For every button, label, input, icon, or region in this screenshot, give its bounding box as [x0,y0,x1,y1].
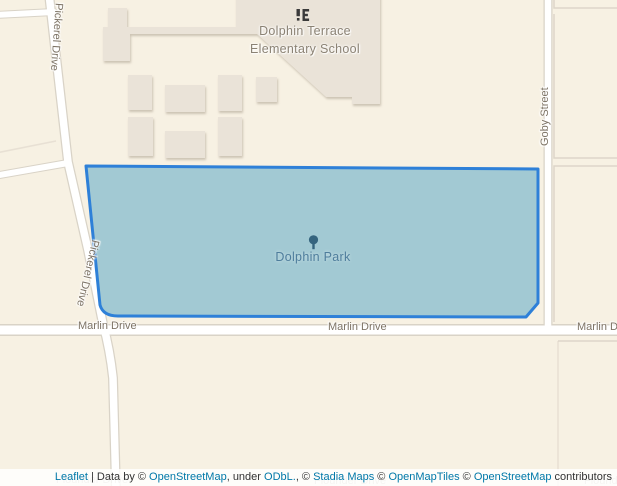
map[interactable]: Dolphin Terrace Elementary School Dolphi… [0,0,617,486]
portable-building [128,75,152,110]
buildings-layer [103,0,380,158]
school-building-connector [127,27,258,34]
portable-building [218,75,242,111]
attribution-link-stadia-maps[interactable]: Stadia Maps [313,471,374,483]
portable-building [165,131,205,158]
attribution-text: , © [296,471,313,483]
portable-building [165,85,205,112]
attribution-link-leaflet[interactable]: Leaflet [55,471,88,483]
attribution-text: | Data by © [88,471,149,483]
attribution-text: © [374,471,388,483]
attribution-text: © [460,471,474,483]
attribution-text: contributors [551,471,612,483]
attribution-text: , under [227,471,264,483]
attribution-link-odbl[interactable]: ODbL. [264,471,296,483]
portable-building [128,117,153,156]
school-building-left-wing [103,8,130,61]
attribution-link-openstreetmap-2[interactable]: OpenStreetMap [474,471,552,483]
portable-building [218,117,242,156]
road-topleft [0,12,54,15]
portable-building [256,77,277,102]
attribution-link-openmaptiles[interactable]: OpenMapTiles [388,471,459,483]
park-polygon[interactable] [86,166,538,317]
attribution-link-openstreetmap[interactable]: OpenStreetMap [149,471,227,483]
map-base-layer [0,0,617,486]
attribution-bar: Leaflet | Data by © OpenStreetMap, under… [0,469,617,486]
